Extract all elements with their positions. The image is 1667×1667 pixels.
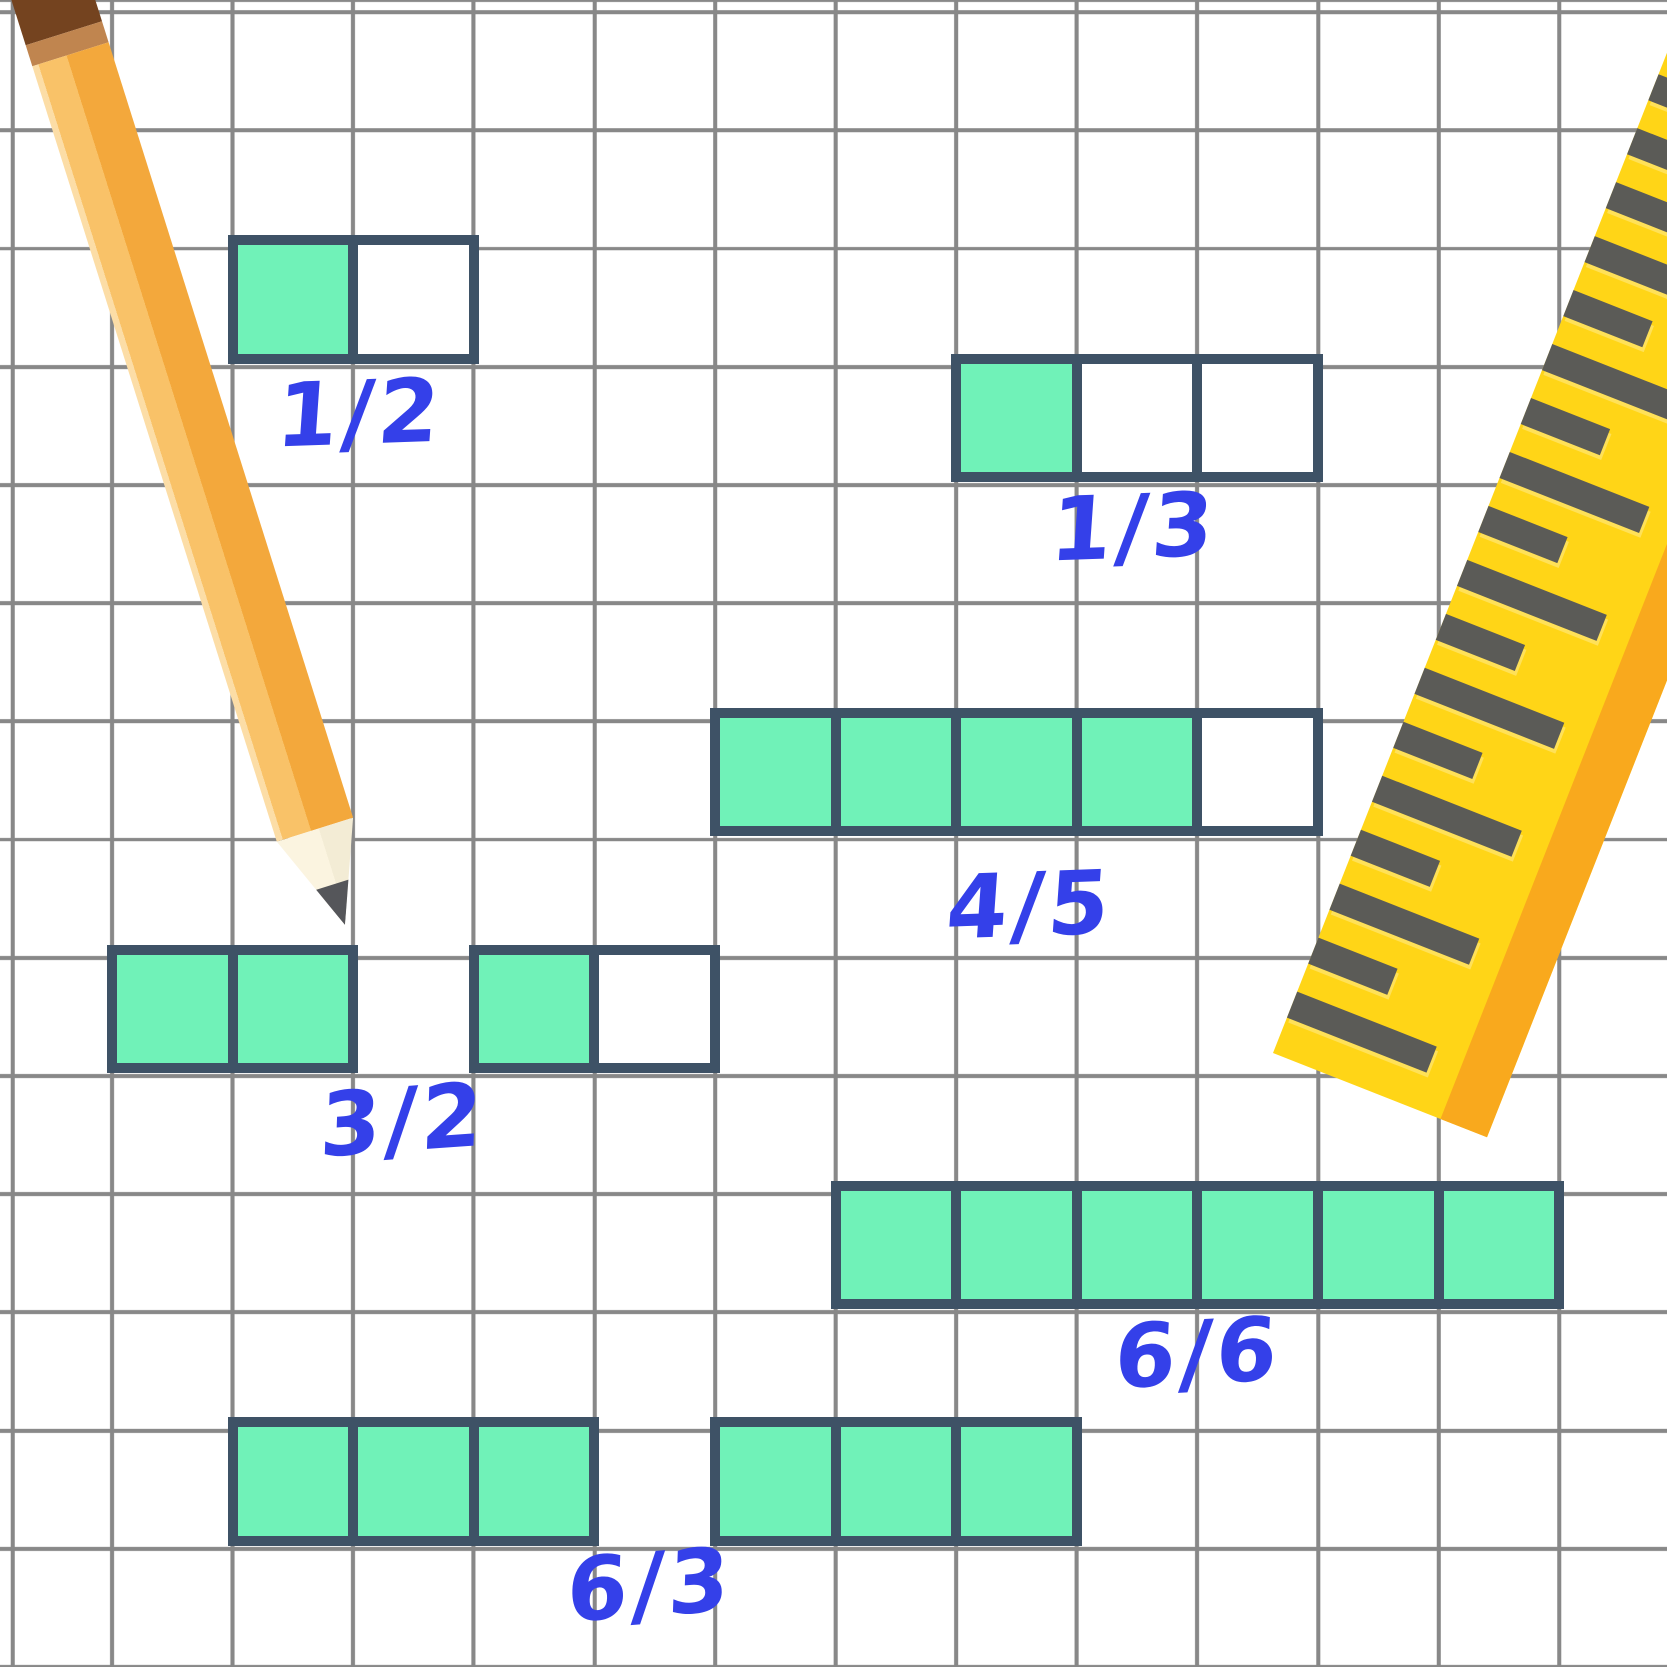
shaded-cell [720,1427,831,1535]
shaded-cell [841,1191,952,1299]
ruler-tick-short [1308,938,1397,995]
unshaded-cell [1202,718,1313,826]
fraction-label-6-3: 6/3 [565,1527,735,1642]
shaded-cell [961,364,1072,472]
fraction-label-1-3: 1/3 [1047,472,1221,581]
shaded-cell [961,718,1072,826]
unshaded-cell [1202,364,1313,472]
fraction-bar-3-2 [469,945,720,1073]
shaded-cell [1202,1191,1313,1299]
shaded-cell [358,1427,469,1535]
fraction-bar-3-2 [107,945,358,1073]
fraction-bar-6-3 [228,1417,600,1545]
fraction-label-1-2: 1/2 [273,358,447,467]
shaded-cell [720,718,831,826]
fraction-label-3-2: 3/2 [318,1062,488,1177]
fraction-bar-1-2 [228,235,479,363]
fraction-bar-6-3 [710,1417,1082,1545]
shaded-cell [1444,1191,1555,1299]
worksheet-canvas: { "canvas": {"width": 1667, "height": 16… [0,0,1667,1667]
ruler-tick-short [1521,398,1610,455]
ruler-tick-short [1351,830,1440,887]
fraction-label-6-6: 6/6 [1112,1297,1284,1409]
fraction-bar-1-3 [951,354,1323,482]
shaded-cell [1082,718,1193,826]
ruler-tick-short [1606,182,1667,239]
shaded-cell [479,1427,590,1535]
shaded-cell [961,1191,1072,1299]
shaded-cell [1082,1191,1193,1299]
shaded-cell [841,718,952,826]
shaded-cell [238,245,349,353]
shaded-cell [961,1427,1072,1535]
ruler-tick-long [1287,992,1437,1073]
shaded-cell [1323,1191,1434,1299]
shaded-cell [238,955,349,1063]
fraction-bar-4-5 [710,708,1323,836]
shaded-cell [238,1427,349,1535]
shaded-cell [117,955,228,1063]
unshaded-cell [599,955,710,1063]
fraction-label-4-5: 4/5 [943,850,1117,959]
ruler-tick-short [1563,290,1652,347]
shaded-cell [841,1427,952,1535]
shaded-cell [479,955,590,1063]
ruler-tick-short [1478,506,1567,563]
unshaded-cell [1082,364,1193,472]
fraction-bar-6-6 [831,1181,1565,1309]
unshaded-cell [358,245,469,353]
ruler-tick-short [1393,722,1482,779]
ruler-tick-short [1436,614,1525,671]
